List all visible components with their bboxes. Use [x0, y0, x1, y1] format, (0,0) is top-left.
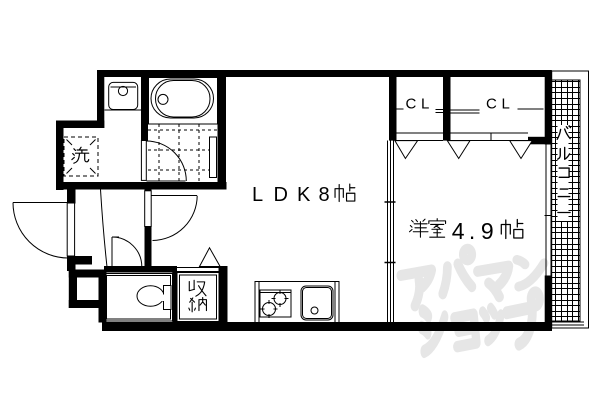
svg-text:CL: CL	[406, 96, 430, 113]
svg-text:LDK8: LDK8	[252, 184, 330, 206]
svg-text:CL: CL	[486, 96, 510, 113]
svg-text:4.9: 4.9	[452, 218, 494, 244]
